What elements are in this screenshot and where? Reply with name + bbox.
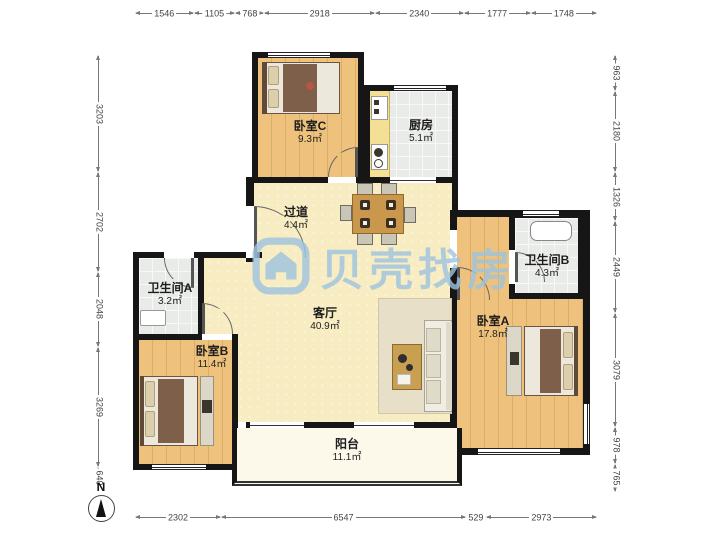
dimension-value: 978 [611,436,620,455]
tv-icon [202,400,212,413]
duvet-icon [158,379,184,443]
bed-headboard [574,326,578,396]
room-area: 3.2㎡ [141,296,199,309]
dimension-segment: 2449 [609,221,622,312]
dimension-value: 1748 [552,9,576,18]
label-bedroom-a: 卧室A 17.8㎡ [462,314,524,342]
stove-burner-icon [374,159,383,168]
dimension-value: 3269 [94,395,103,419]
dimension-value: 3079 [611,358,620,382]
plate-icon [386,200,396,210]
dimension-value: 2702 [94,210,103,234]
plate-icon [386,218,396,228]
dimension-segment: 2702 [92,172,105,271]
room-area: 9.3㎡ [280,134,340,147]
dimension-segment: 1546 [135,7,194,20]
pillow-icon [268,66,279,85]
window-kitchen [394,85,446,91]
pillow-icon [145,411,155,437]
sofa-backrest [446,322,452,410]
sink-basin-icon [374,100,379,105]
watermark-text: 贝壳找房 [320,234,516,298]
dimension-value: 1777 [485,9,509,18]
sofa-cushion [426,354,441,378]
ruler-bottom: 230265475292973 [135,511,597,524]
window-bedroom-c [268,52,330,58]
doorway-bedroom-c [328,177,356,183]
dimension-segment: 2973 [486,511,597,524]
room-area: 40.9㎡ [295,321,355,334]
label-bedroom-b: 卧室B 11.4㎡ [184,344,240,372]
room-name: 过道 [266,205,326,220]
dimension-value: 2180 [611,119,620,143]
dimension-segment: 2918 [264,7,374,20]
dimension-segment: 765 [609,464,622,492]
dimension-segment: 963 [609,55,622,91]
sofa-cushion [426,328,441,352]
dimension-value: 1546 [152,9,176,18]
dimension-segment: 978 [609,427,622,463]
room-name: 卧室A [462,314,524,329]
dimension-segment: 1326 [609,172,622,221]
beike-watermark: 贝壳找房 [252,234,516,298]
dimension-segment: 1777 [464,7,531,20]
dimension-value: 2918 [308,9,332,18]
label-bathroom-b: 卫生间B 4.3㎡ [518,253,576,281]
window-bedroom-b [152,464,206,470]
doorway-bedroom-b [202,334,232,340]
room-name: 卧室C [280,119,340,134]
kettle-icon [406,364,413,371]
window-bedroom-a-bottom [478,448,560,455]
dimension-value: 6547 [332,513,356,522]
room-name: 卫生间A [141,281,199,296]
room-name: 卫生间B [518,253,576,268]
room-area: 11.1㎡ [317,452,377,465]
dimension-segment: 6547 [221,511,466,524]
room-name: 卧室B [184,344,240,359]
ruler-top: 154611057682918234017771748 [135,7,597,20]
dimension-value: 963 [611,63,620,82]
dimension-segment: 2302 [135,511,221,524]
pillow-icon [563,364,573,390]
label-hallway: 过道 4.4㎡ [266,205,326,233]
dimension-value: 2302 [166,513,190,522]
kettle-icon [398,354,407,363]
tv-icon [510,352,519,365]
dimension-segment: 3203 [92,55,105,172]
dimension-value: 768 [240,9,259,18]
room-name: 阳台 [317,437,377,452]
bathtub-icon [530,221,572,241]
pillow-icon [145,381,155,407]
room-area: 17.8㎡ [462,329,524,342]
dimension-segment: 3269 [92,347,105,467]
bed-headboard [262,62,267,114]
washbasin-icon [140,310,166,326]
compass-needle-icon [96,499,106,517]
beike-logo-icon [252,237,310,295]
dimension-segment: 2340 [375,7,464,20]
dimension-value: 2340 [407,9,431,18]
compass: N [86,481,116,522]
dimension-segment: 1105 [194,7,236,20]
bed-decor-icon [306,82,314,90]
ruler-right: 9632180132624493079978765 [609,55,622,492]
dimension-value: 1326 [611,185,620,209]
window-bathroom-b [523,210,559,217]
label-bedroom-c: 卧室C 9.3㎡ [280,119,340,147]
dimension-value: 2048 [94,297,103,321]
dimension-segment: 768 [235,7,264,20]
pillow-icon [268,89,279,108]
room-area: 11.4㎡ [184,359,240,372]
dimension-value: 765 [611,468,620,487]
label-living-room: 客厅 40.9㎡ [295,306,355,334]
dimension-segment: 2180 [609,91,622,172]
floor-plan-page: 154611057682918234017771748 230265475292… [0,0,720,540]
compass-north-label: N [86,481,116,494]
label-balcony: 阳台 11.1㎡ [317,437,377,465]
ruler-left: 3203270220483269640 [92,55,105,490]
window-bedroom-a-right [583,404,590,444]
dimension-segment: 3079 [609,313,622,428]
sliding-door-balcony-left [250,422,304,428]
stove-burner-icon [374,148,383,157]
dimension-segment: 2048 [92,272,105,347]
compass-dial-icon [88,495,115,522]
label-bathroom-a: 卫生间A 3.2㎡ [141,281,199,309]
room-area: 4.3㎡ [518,268,576,281]
plate-icon [360,200,370,210]
tray-icon [397,374,411,385]
label-kitchen: 厨房 5.1㎡ [392,118,450,146]
sink-basin-icon [374,109,379,114]
room-name: 客厅 [295,306,355,321]
dimension-value: 2973 [529,513,553,522]
room-area: 4.4㎡ [266,220,326,233]
bed-headboard [140,376,144,446]
dimension-segment: 529 [466,511,486,524]
dimension-value: 1105 [203,9,226,18]
duvet-icon [540,329,561,393]
pillow-icon [563,332,573,358]
sofa-cushion [426,380,441,404]
chair-icon [340,205,352,221]
plate-icon [360,218,370,228]
dimension-value: 529 [466,513,485,522]
dimension-value: 2449 [611,255,620,279]
dimension-segment: 1748 [531,7,597,20]
dimension-value: 3203 [94,102,103,126]
room-name: 厨房 [392,118,450,133]
chair-icon [404,207,416,223]
room-area: 5.1㎡ [392,133,450,146]
sliding-door-balcony-right [354,422,414,428]
